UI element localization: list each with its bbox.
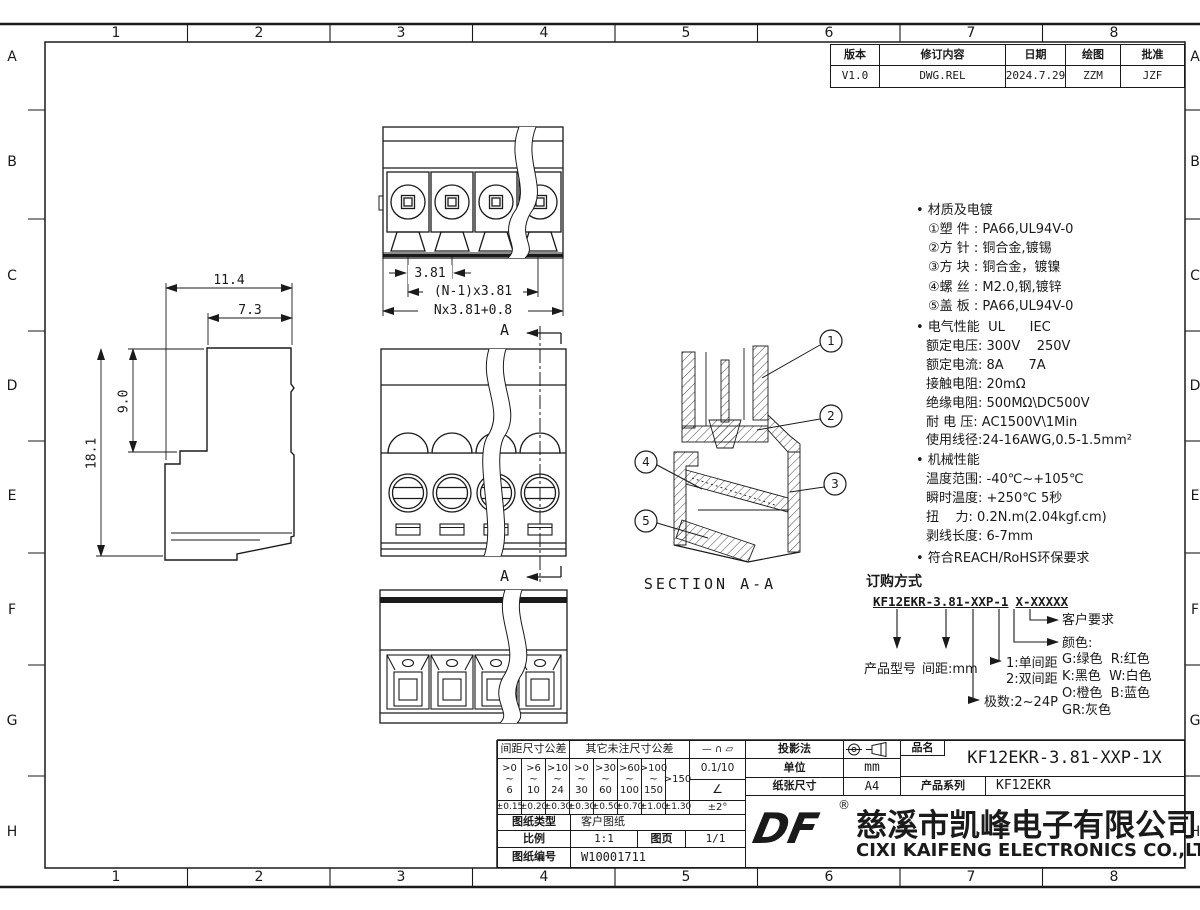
note-line: ②方 针 : 铜合金,镀锡 bbox=[928, 240, 1052, 259]
materials-title: • 材质及电镀 bbox=[916, 202, 993, 221]
grid-col-label: 6 bbox=[814, 25, 844, 41]
note-line: 温度范围: -40℃~+105℃ bbox=[926, 471, 1084, 490]
company-name-en: CIXI KAIFENG ELECTRONICS CO.,LTD bbox=[856, 840, 1186, 861]
note-line: ④螺 丝 : M2.0,钢,镀锌 bbox=[928, 279, 1062, 298]
series-value: KF12EKR bbox=[985, 776, 1185, 796]
ordering-pitch2: 2:双间距 bbox=[1006, 671, 1058, 690]
page-value: 1/1 bbox=[685, 830, 746, 848]
projection-label: 投影法 bbox=[745, 740, 844, 759]
balloon-2: 2 bbox=[823, 408, 839, 424]
paper-label: 纸张尺寸 bbox=[745, 777, 844, 796]
first-angle-projection-icon bbox=[844, 741, 894, 758]
tol-range: >0 ~ 6 bbox=[497, 758, 522, 801]
dim-7.3: 7.3 bbox=[228, 302, 272, 321]
scale-label: 比例 bbox=[497, 830, 571, 848]
tol-range: >6 ~ 10 bbox=[521, 758, 546, 801]
note-line: ③方 块 : 铜合金，镀镍 bbox=[928, 259, 1060, 278]
revision-content: DWG.REL bbox=[879, 65, 1006, 88]
tol-value: ±0.50 bbox=[593, 800, 618, 815]
ordering-color-option: GR:灰色 bbox=[1062, 702, 1111, 721]
grid-row-label: E bbox=[1187, 488, 1200, 504]
ordering-code: KF12EKR-3.81-XXP-1X-XXXXX bbox=[873, 593, 1068, 611]
grid-col-label: 2 bbox=[244, 25, 274, 41]
grid-col-label: 4 bbox=[529, 25, 559, 41]
note-line: 使用线径:24-16AWG,0.5-1.5mm² bbox=[926, 432, 1132, 451]
ordering-customer: 客户要求 bbox=[1062, 612, 1114, 631]
tol-pitch-header: 间距尺寸公差 bbox=[497, 740, 570, 759]
ordering-code-main: KF12EKR-3.81-XXP-1 bbox=[873, 594, 1008, 609]
company-logo: DF bbox=[750, 808, 822, 850]
revision-header: 修订内容 bbox=[879, 44, 1006, 66]
bottom-view bbox=[380, 590, 567, 723]
grid-row-label: H bbox=[4, 824, 20, 840]
grid-row-label: B bbox=[4, 154, 20, 170]
grid-col-label: 4 bbox=[529, 869, 559, 885]
engineering-drawing-sheet: 1 2 3 4 5 6 7 8 1 2 3 4 5 6 7 8 A B C D … bbox=[0, 0, 1200, 910]
note-line: ⑤盖 板 : PA66,UL94V-0 bbox=[928, 298, 1073, 317]
balloon-4: 4 bbox=[638, 454, 654, 470]
tol-value: ±1.30 bbox=[665, 800, 690, 815]
side-view bbox=[96, 283, 294, 560]
grid-col-label: 7 bbox=[956, 869, 986, 885]
tol-range: >30 ~ 60 bbox=[593, 758, 618, 801]
tol-value: ±1.00 bbox=[641, 800, 666, 815]
dim-9.0: 9.0 bbox=[116, 381, 135, 421]
docnum-label: 图纸编号 bbox=[497, 847, 571, 868]
note-line: 绝缘电阻: 500MΩ\DC500V bbox=[926, 395, 1090, 414]
company-area: DF ® 慈溪市凯峰电子有限公司 CIXI KAIFENG ELECTRONIC… bbox=[745, 795, 1185, 868]
grid-row-label: D bbox=[4, 378, 20, 394]
ordering-pitch-label: 间距:mm bbox=[922, 661, 978, 680]
note-line: 剥线长度: 6-7mm bbox=[926, 528, 1033, 547]
tol-value: ±0.70 bbox=[617, 800, 642, 815]
section-mark-top: A bbox=[500, 320, 509, 342]
geo-symbols: — ∩ ▱ bbox=[689, 740, 746, 759]
grid-col-label: 8 bbox=[1099, 25, 1129, 41]
grid-col-label: 7 bbox=[956, 25, 986, 41]
grid-row-label: C bbox=[1187, 268, 1200, 284]
grid-row-label: D bbox=[1187, 378, 1200, 394]
grid-col-label: 5 bbox=[671, 25, 701, 41]
grid-col-label: 2 bbox=[244, 869, 274, 885]
product-name-label: 品名 bbox=[900, 740, 945, 756]
unit-label: 单位 bbox=[745, 758, 844, 778]
section-mark-bottom: A bbox=[500, 566, 509, 588]
scale-value: 1:1 bbox=[570, 830, 638, 848]
grid-col-label: 1 bbox=[101, 25, 131, 41]
balloon-1: 1 bbox=[823, 333, 839, 349]
company-name-cn: 慈溪市凯峰电子有限公司 bbox=[856, 800, 1186, 845]
grid-col-label: 6 bbox=[814, 869, 844, 885]
ordering-model: 产品型号 bbox=[864, 661, 916, 680]
angle-tol: ±2° bbox=[689, 800, 746, 815]
note-line: 扭 力: 0.2N.m(2.04kgf.cm) bbox=[926, 509, 1107, 528]
tol-range: >10 ~ 24 bbox=[545, 758, 570, 801]
grid-col-label: 1 bbox=[101, 869, 131, 885]
mechanical-title: • 机械性能 bbox=[916, 452, 980, 471]
grid-col-label: 3 bbox=[386, 869, 416, 885]
note-line: ①塑 件 : PA66,UL94V-0 bbox=[928, 221, 1073, 240]
tol-range: >0 ~ 30 bbox=[569, 758, 594, 801]
ordering-title: 订购方式 bbox=[866, 572, 922, 592]
projection-symbol bbox=[843, 740, 901, 759]
revision-approve: JZF bbox=[1120, 65, 1185, 88]
grid-row-label: A bbox=[4, 49, 20, 65]
tol-value: ±0.15 bbox=[497, 800, 522, 815]
dim-18.1: 18.1 bbox=[84, 433, 103, 473]
dim-nx381: Nx3.81+0.8 bbox=[418, 302, 528, 321]
note-line: 接触电阻: 20mΩ bbox=[926, 376, 1026, 395]
tol-range-last: >150 bbox=[665, 758, 690, 801]
tol-range: >60 ~ 100 bbox=[617, 758, 642, 801]
tol-other-header: 其它未注尺寸公差 bbox=[569, 740, 690, 759]
paper-value: A4 bbox=[843, 777, 901, 796]
dim-n1x381: (N-1)x3.81 bbox=[423, 283, 523, 302]
revision-header: 日期 bbox=[1005, 44, 1066, 66]
dim-11.4: 11.4 bbox=[199, 272, 259, 291]
note-line: 耐 电 压: AC1500V\1Min bbox=[926, 414, 1077, 433]
compliance-note: • 符合REACH/RoHS环保要求 bbox=[916, 550, 1089, 569]
tol-value: ±0.20 bbox=[521, 800, 546, 815]
grid-col-label: 8 bbox=[1099, 869, 1129, 885]
note-line: 额定电流: 8A 7A bbox=[926, 357, 1046, 376]
tol-value: ±0.30 bbox=[569, 800, 594, 815]
revision-draw: ZZM bbox=[1065, 65, 1121, 88]
ordering-code-suffix: X-XXXXX bbox=[1015, 594, 1068, 609]
note-line: 额定电压: 300V 250V bbox=[926, 338, 1070, 357]
angle-symbol: ∠ bbox=[689, 779, 746, 801]
grid-row-label: B bbox=[1187, 154, 1200, 170]
section-view bbox=[635, 330, 846, 562]
dim-3.81: 3.81 bbox=[408, 265, 452, 284]
balloon-3: 3 bbox=[827, 476, 843, 492]
grid-row-label: E bbox=[4, 488, 20, 504]
grid-row-label: A bbox=[1187, 49, 1200, 65]
ordering-poles: 极数:2~24P bbox=[984, 694, 1058, 713]
flatness-tol: 0.1/10 bbox=[689, 758, 746, 780]
tol-range: >100 ~ 150 bbox=[641, 758, 666, 801]
grid-row-label: C bbox=[4, 268, 20, 284]
unit-value: mm bbox=[843, 758, 901, 778]
title-block: 间距尺寸公差 其它未注尺寸公差 — ∩ ▱ >0 ~ 6 >6 ~ 10 >10… bbox=[497, 740, 1185, 868]
electrical-title: • 电气性能 UL IEC bbox=[916, 319, 1051, 338]
front-view bbox=[381, 326, 566, 582]
doctype-label: 图纸类型 bbox=[497, 814, 571, 831]
tol-value: ±0.30 bbox=[545, 800, 570, 815]
revision-version: V1.0 bbox=[830, 65, 880, 88]
note-line: 瞬时温度: +250℃ 5秒 bbox=[926, 490, 1062, 509]
grid-col-label: 3 bbox=[386, 25, 416, 41]
grid-col-label: 5 bbox=[671, 869, 701, 885]
page-label: 图页 bbox=[637, 830, 686, 848]
revision-header: 批准 bbox=[1120, 44, 1185, 66]
revision-table: 版本 修订内容 日期 绘图 批准 V1.0 DWG.REL 2024.7.29 … bbox=[830, 44, 1185, 88]
grid-row-label: G bbox=[1187, 713, 1200, 729]
grid-row-label: F bbox=[4, 602, 20, 618]
series-label: 产品系列 bbox=[900, 776, 986, 796]
section-title: SECTION A-A bbox=[630, 574, 790, 596]
product-name-value: KF12EKR-3.81-XXP-1X bbox=[944, 740, 1185, 777]
grid-row-label: F bbox=[1187, 602, 1200, 618]
grid-row-label: G bbox=[4, 713, 20, 729]
balloon-5: 5 bbox=[638, 513, 654, 529]
registered-mark: ® bbox=[838, 798, 850, 812]
doctype-value: 客户图纸 bbox=[570, 814, 746, 831]
revision-header: 版本 bbox=[830, 44, 880, 66]
docnum-value: W10001711 bbox=[570, 847, 746, 868]
revision-date: 2024.7.29 bbox=[1005, 65, 1066, 88]
revision-header: 绘图 bbox=[1065, 44, 1121, 66]
